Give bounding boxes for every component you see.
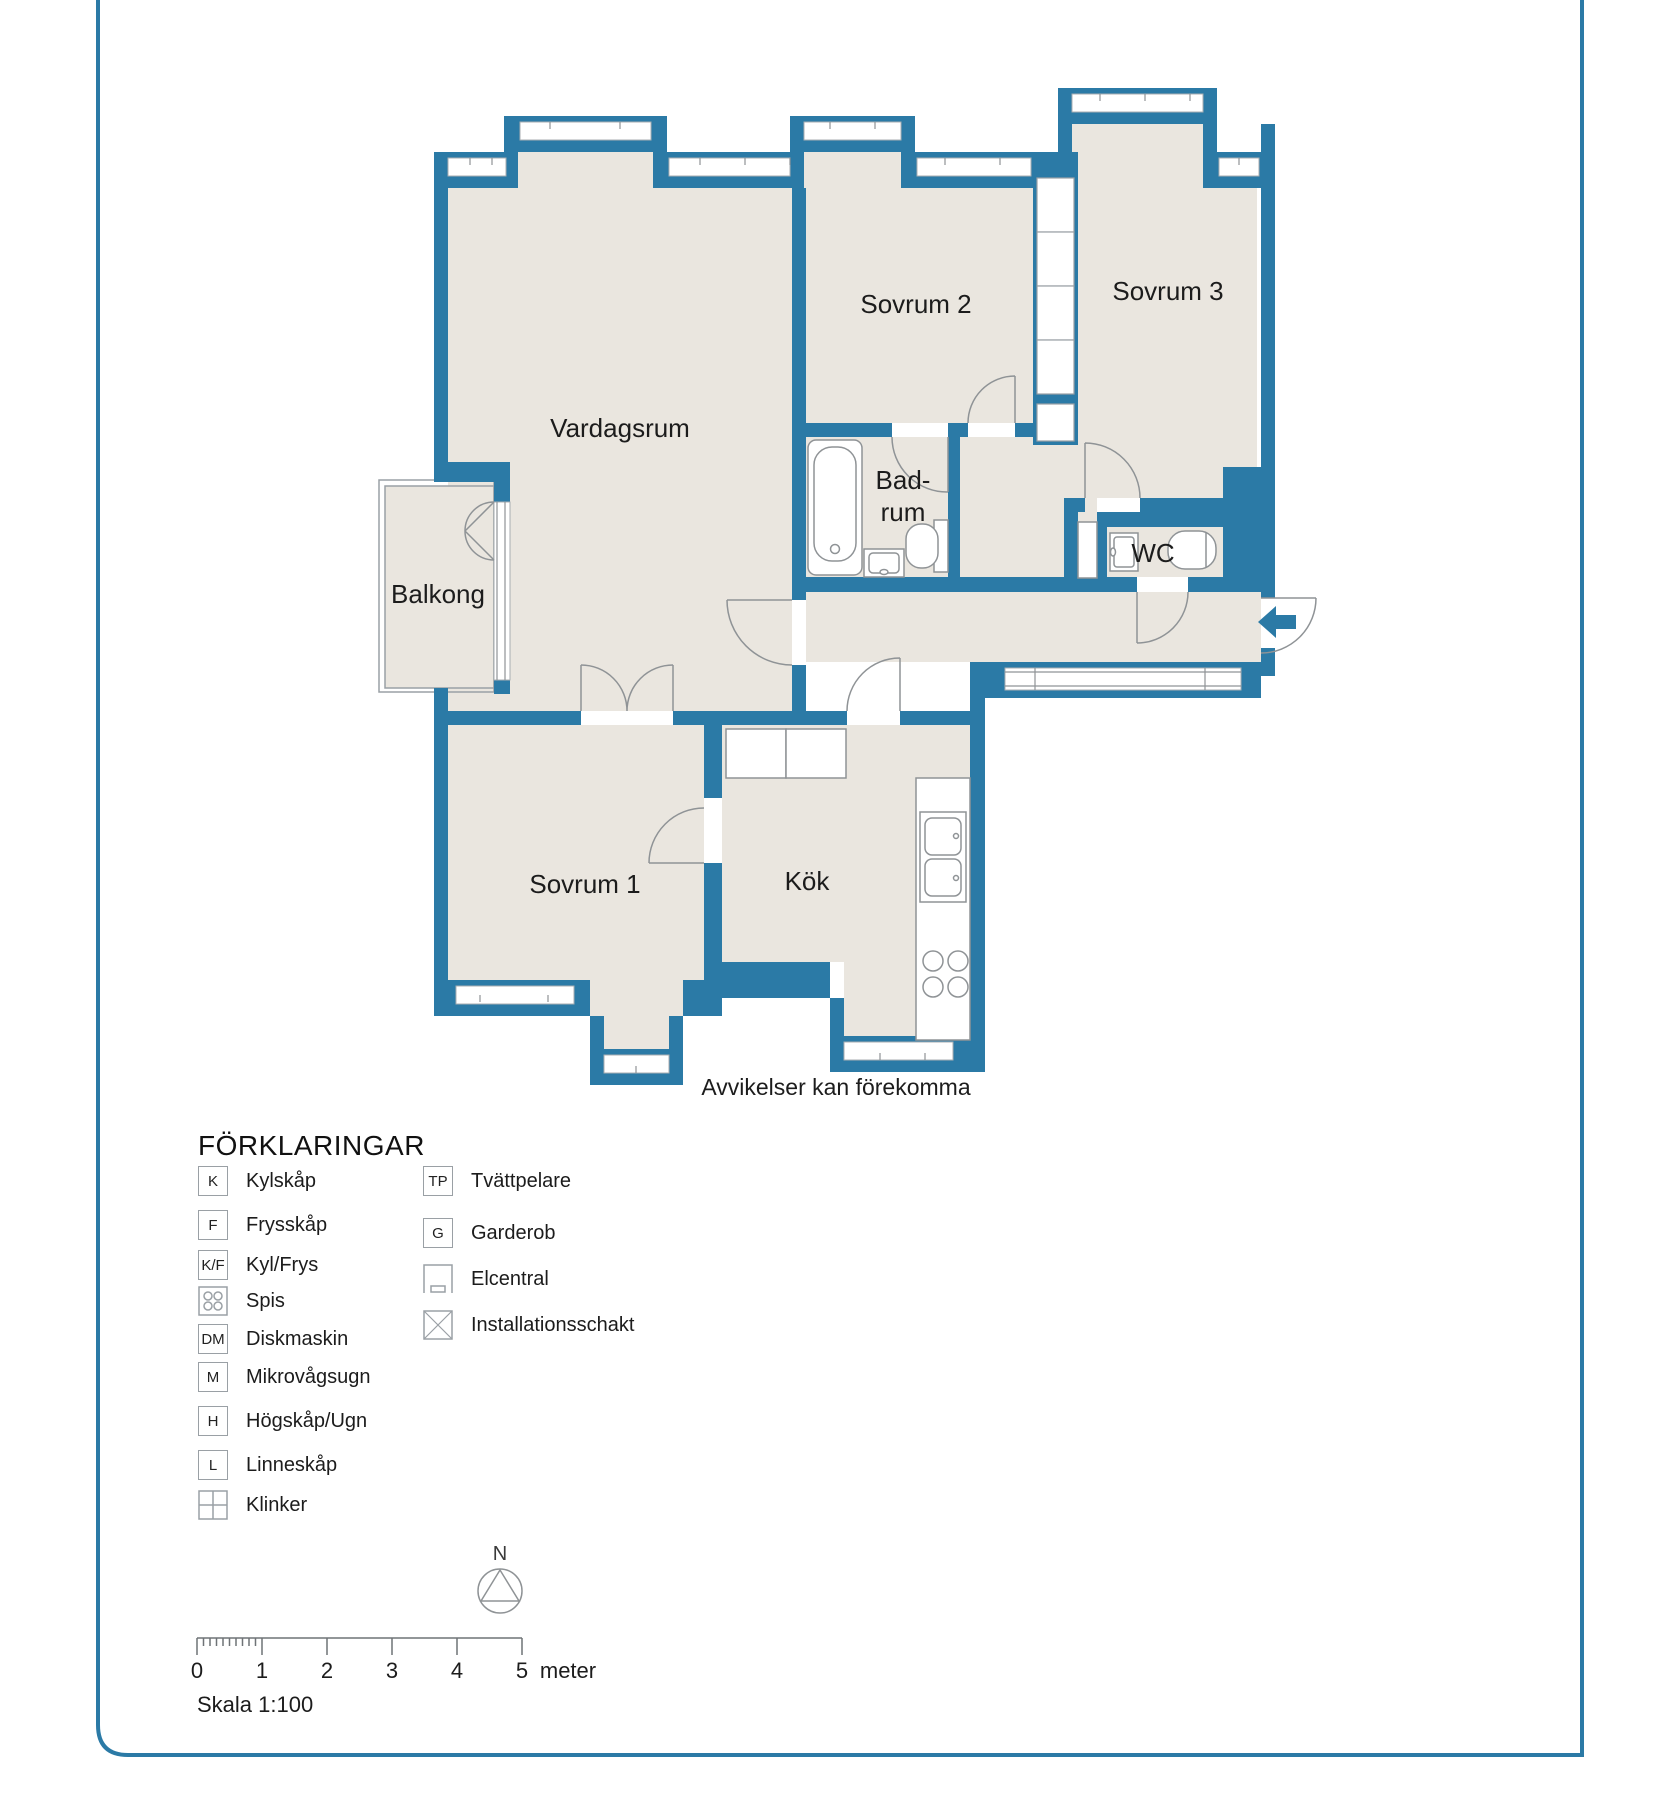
legend-label: Garderob — [471, 1222, 556, 1245]
legend-label: Klinker — [246, 1494, 307, 1517]
room-label-vardagsrum: Vardagsrum — [550, 413, 690, 443]
legend-label: Spis — [246, 1290, 285, 1313]
legend-item-diskmaskin: DM Diskmaskin — [198, 1324, 348, 1354]
wardrobe-symbol: G — [423, 1218, 453, 1248]
legend-item-elcentral: Elcentral — [423, 1264, 549, 1294]
room-label-badrum-line2: rum — [881, 497, 926, 527]
fridge-freezer-symbol: K/F — [198, 1250, 228, 1280]
hall-floor — [806, 592, 1261, 662]
wc-toilet — [1168, 531, 1216, 569]
room-label-balkong: Balkong — [391, 579, 485, 609]
scale-caption: Skala 1:100 — [197, 1692, 313, 1717]
legend-label: Elcentral — [471, 1268, 549, 1291]
microwave-symbol: M — [198, 1362, 228, 1392]
room-label-sovrum2: Sovrum 2 — [860, 289, 971, 319]
freezer-symbol: F — [198, 1210, 228, 1240]
fridge-symbol: K — [198, 1166, 228, 1196]
sovrum3-floor — [1078, 188, 1257, 498]
tiles-icon — [198, 1490, 228, 1520]
legend-item-hogskap: H Högskåp/Ugn — [198, 1406, 367, 1436]
room-label-sovrum1: Sovrum 1 — [529, 869, 640, 899]
tall-cabinet-symbol: H — [198, 1406, 228, 1436]
laundry-tower-symbol: TP — [423, 1166, 453, 1196]
scale-tick-0: 0 — [191, 1658, 203, 1683]
linen-cabinet-symbol: L — [198, 1450, 228, 1480]
scale-tick-1: 1 — [256, 1658, 268, 1683]
dishwasher-symbol: DM — [198, 1324, 228, 1354]
disclaimer-text: Avvikelser kan förekomma — [701, 1074, 970, 1100]
legend-label: Högskåp/Ugn — [246, 1410, 367, 1433]
room-label-sovrum3: Sovrum 3 — [1112, 276, 1223, 306]
stove-icon — [198, 1286, 228, 1316]
kitchen-cabinets — [726, 729, 846, 778]
room-label-wc: WC — [1131, 538, 1174, 568]
legend-label: Tvättpelare — [471, 1170, 571, 1193]
room-label-badrum-line1: Bad- — [876, 465, 931, 495]
scale-tick-5: 5 — [516, 1658, 528, 1683]
room-label-kok: Kök — [785, 866, 831, 896]
legend-item-mikrovagsugn: M Mikrovågsugn — [198, 1362, 371, 1392]
scale-unit: meter — [540, 1658, 596, 1683]
legend-title: FÖRKLARINGAR — [198, 1130, 425, 1162]
kitchen-counter — [916, 778, 970, 1040]
legend-label: Installationsschakt — [471, 1314, 634, 1337]
compass-icon: N — [478, 1543, 522, 1613]
legend-item-frysskap: F Frysskåp — [198, 1210, 327, 1240]
legend-item-tvattpelare: TP Tvättpelare — [423, 1166, 571, 1196]
door-leaf — [1078, 522, 1097, 578]
badrum-toilet — [906, 520, 948, 572]
legend-item-linneskap: L Linneskåp — [198, 1450, 337, 1480]
bathtub — [808, 440, 862, 575]
floorplan-page: Vardagsrum Sovrum 2 Sovrum 3 Bad- rum WC… — [0, 0, 1666, 1800]
legend-item-spis: Spis — [198, 1286, 285, 1316]
scale-tick-4: 4 — [451, 1658, 463, 1683]
scale-tick-2: 2 — [321, 1658, 333, 1683]
legend-item-garderob: G Garderob — [423, 1218, 556, 1248]
legend-item-kylfrys: K/F Kyl/Frys — [198, 1250, 318, 1280]
legend-label: Kylskåp — [246, 1170, 316, 1193]
legend-item-klinker: Klinker — [198, 1490, 307, 1520]
legend-item-kylskap: K Kylskåp — [198, 1166, 316, 1196]
legend-label: Diskmaskin — [246, 1328, 348, 1351]
legend: FÖRKLARINGAR K Kylskåp F Frysskåp K/F Ky… — [198, 1130, 958, 1550]
kok-hall-door — [847, 658, 900, 711]
legend-item-installationsschakt: Installationsschakt — [423, 1310, 634, 1340]
legend-label: Linneskåp — [246, 1454, 337, 1477]
sovrum1-floor — [448, 725, 704, 980]
scale-tick-3: 3 — [386, 1658, 398, 1683]
legend-label: Kyl/Frys — [246, 1254, 318, 1277]
elcentral-icon — [423, 1264, 453, 1294]
shaft-icon — [423, 1310, 453, 1340]
badrum-sink — [864, 549, 904, 577]
legend-label: Frysskåp — [246, 1214, 327, 1237]
scale-bar: 0 1 2 3 4 5 meter Skala 1:100 — [191, 1638, 596, 1717]
legend-label: Mikrovågsugn — [246, 1366, 371, 1389]
installation-shaft — [1223, 467, 1275, 580]
